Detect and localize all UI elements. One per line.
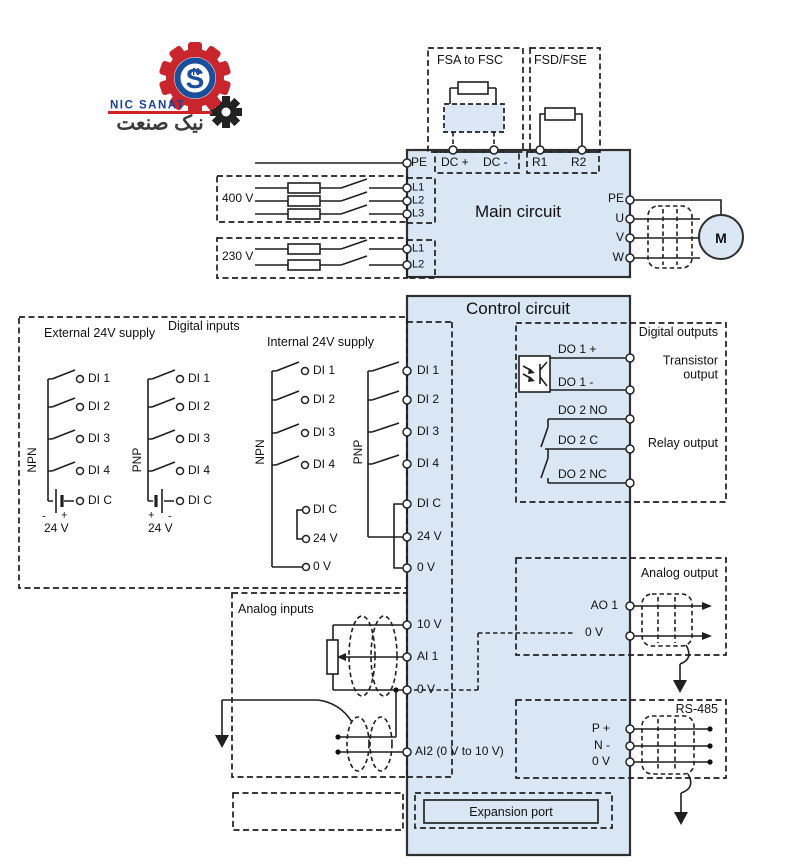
analog-input-wiring (215, 616, 403, 771)
terminal-u: U (608, 212, 624, 226)
terminal-pe-out: PE (600, 192, 624, 206)
supply-400v-label: 400 V (222, 192, 253, 206)
cable-shield-icon (370, 717, 392, 771)
control-circuit-title: Control circuit (448, 299, 588, 319)
ext-npn-di3: DI 3 (88, 432, 110, 446)
int-npn-label: NPN (254, 432, 268, 472)
terminal-r2: R2 (571, 156, 586, 170)
term-dic: DI C (417, 497, 441, 511)
term-ai1: AI 1 (417, 650, 438, 664)
ext-npn-di4: DI 4 (88, 464, 110, 478)
terminal-l2: L2 (412, 195, 424, 208)
int-npn-di1: DI 1 (313, 364, 335, 378)
transistor-output-label: Transistor output (633, 354, 718, 383)
rs485-n-label: N - (582, 739, 610, 753)
ext-npn-di2: DI 2 (88, 400, 110, 414)
terminal-r1: R1 (532, 156, 547, 170)
terminal-l1-230: L1 (412, 243, 424, 256)
external-supply-label: External 24V supply (44, 326, 155, 340)
cable-shield-icon (347, 717, 369, 771)
expansion-port-label: Expansion port (424, 805, 598, 819)
fsa-box-label: FSA to FSC (437, 53, 503, 67)
ext-npn-24v: 24 V (44, 522, 69, 536)
do1-minus-label: DO 1 - (558, 376, 593, 390)
cable-shield-icon (349, 616, 375, 696)
int-npn-24v: 24 V (313, 532, 338, 546)
terminal-l2-230: L2 (412, 259, 424, 272)
ext-pnp-di2: DI 2 (188, 400, 210, 414)
ext-npn-dic: DI C (88, 494, 112, 508)
int-npn-0v: 0 V (313, 560, 331, 574)
do1-plus-label: DO 1 + (558, 343, 596, 357)
ext-pnp-di4: DI 4 (188, 464, 210, 478)
braking-resistor-icon (545, 108, 575, 120)
ground-arrow-icon (674, 812, 688, 825)
digital-outputs-label: Digital outputs (598, 325, 718, 339)
term-di2: DI 2 (417, 393, 439, 407)
cable-shield-icon (642, 716, 694, 774)
terminal-dc-plus: DC + (441, 156, 469, 170)
term-10v: 10 V (417, 618, 442, 632)
analog-output-label: Analog output (606, 566, 718, 580)
analog-inputs-box (232, 593, 407, 777)
terminal-dc-minus: DC - (483, 156, 508, 170)
ao-0v-label: 0 V (579, 626, 603, 640)
internal-pnp-column (368, 362, 403, 568)
fuse-icon (288, 244, 320, 254)
external-npn-column (48, 370, 84, 513)
ext-pnp-di1: DI 1 (188, 372, 210, 386)
term-di3: DI 3 (417, 425, 439, 439)
main-circuit-title: Main circuit (448, 202, 588, 222)
logo-name-fa: نیک صنعت (100, 113, 220, 136)
int-pnp-label: PNP (352, 432, 366, 472)
int-npn-di3: DI 3 (313, 426, 335, 440)
digital-inputs-label: Digital inputs (168, 319, 240, 333)
ao1-label: AO 1 (580, 599, 618, 613)
rs485-wiring (634, 716, 713, 825)
analog-inputs-label: Analog inputs (238, 602, 314, 616)
term-24v: 24 V (417, 530, 442, 544)
int-npn-dic: DI C (313, 503, 337, 517)
ground-arrow-icon (673, 680, 687, 693)
terminal-w: W (606, 251, 624, 265)
term-ai2: AI2 (0 V to 10 V) (415, 745, 504, 759)
motor-label: M (707, 230, 735, 246)
fuse-icon (288, 209, 320, 219)
wiring-diagram: N S (0, 0, 800, 866)
ext-npn-di1: DI 1 (88, 372, 110, 386)
rs485-label: RS-485 (638, 702, 718, 716)
logo-monogram-s: S (186, 63, 205, 94)
rs485-0v-label: 0 V (580, 755, 610, 769)
ext-npn-label: NPN (26, 440, 40, 480)
cable-shield-icon (642, 594, 692, 646)
potentiometer-icon (327, 640, 338, 674)
internal-npn-column (272, 362, 310, 571)
do2-nc-label: DO 2 NC (558, 468, 607, 482)
supply-230v-label: 230 V (222, 250, 253, 264)
terminal-v: V (608, 231, 624, 245)
term-di1: DI 1 (417, 364, 439, 378)
fuse-icon (288, 260, 320, 270)
digital-inputs-box (19, 317, 407, 588)
option-slot-box (233, 793, 403, 830)
ext-pnp-dic: DI C (188, 494, 212, 508)
ext-pnp-label: PNP (131, 440, 145, 480)
fuse-icon (288, 196, 320, 206)
fuse-icon (288, 183, 320, 193)
do2-no-label: DO 2 NO (558, 404, 607, 418)
int-npn-di4: DI 4 (313, 458, 335, 472)
rs485-p-label: P + (582, 722, 610, 736)
term-0v-analog: 0 V (417, 683, 435, 697)
ground-arrow-icon (215, 735, 229, 748)
terminal-l1: L1 (412, 182, 424, 195)
braking-resistor-icon (458, 82, 488, 94)
relay-output-label: Relay output (608, 436, 718, 450)
internal-supply-label: Internal 24V supply (267, 335, 374, 349)
ext-pnp-24v: 24 V (148, 522, 173, 536)
terminal-pe-top: PE (411, 156, 427, 170)
do2-c-label: DO 2 C (558, 434, 598, 448)
ext-pnp-di3: DI 3 (188, 432, 210, 446)
int-npn-di2: DI 2 (313, 393, 335, 407)
analog-output-wiring (634, 594, 712, 693)
term-0v: 0 V (417, 561, 435, 575)
term-di4: DI 4 (417, 457, 439, 471)
external-pnp-column (148, 370, 184, 513)
fsd-box-label: FSD/FSE (534, 53, 587, 67)
terminal-l3: L3 (412, 208, 424, 221)
